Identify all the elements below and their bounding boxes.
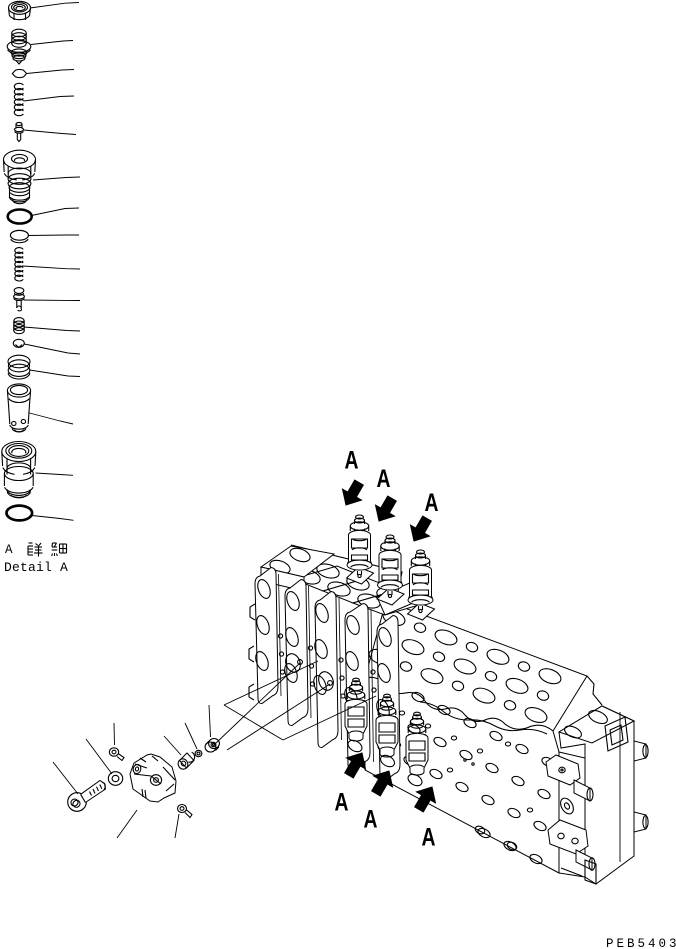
svg-text:A: A (345, 447, 359, 475)
svg-text:PEB5403: PEB5403 (606, 937, 676, 949)
svg-text:Detail A: Detail A (4, 560, 68, 575)
svg-text:A: A (335, 789, 349, 817)
svg-text:A: A (364, 806, 378, 834)
svg-text:A: A (377, 465, 391, 493)
svg-text:A: A (425, 489, 439, 517)
svg-text:A: A (5, 543, 13, 557)
svg-text:A: A (422, 824, 436, 852)
